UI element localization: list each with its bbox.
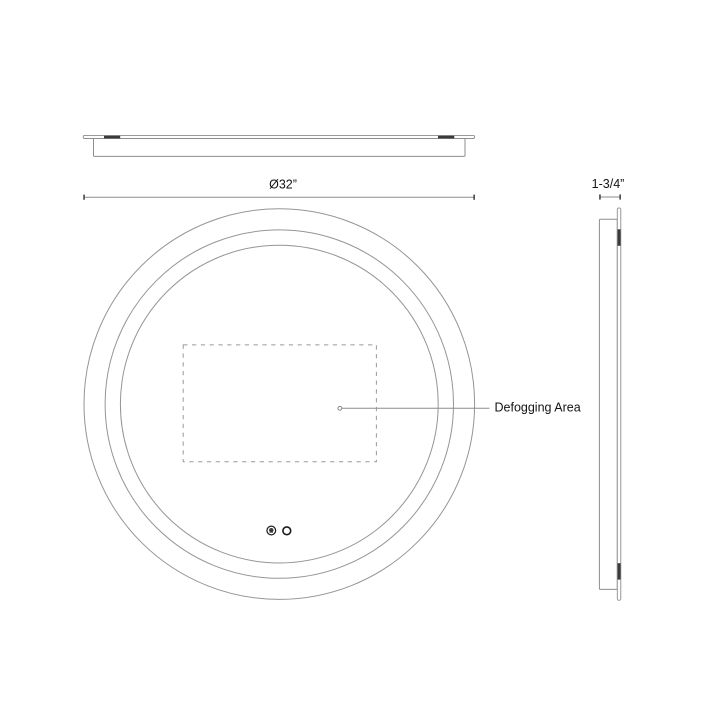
svg-text:Ø32”: Ø32” — [269, 177, 297, 191]
svg-text:1-3/4”: 1-3/4” — [592, 177, 625, 191]
svg-text:Defogging Area: Defogging Area — [495, 401, 581, 415]
